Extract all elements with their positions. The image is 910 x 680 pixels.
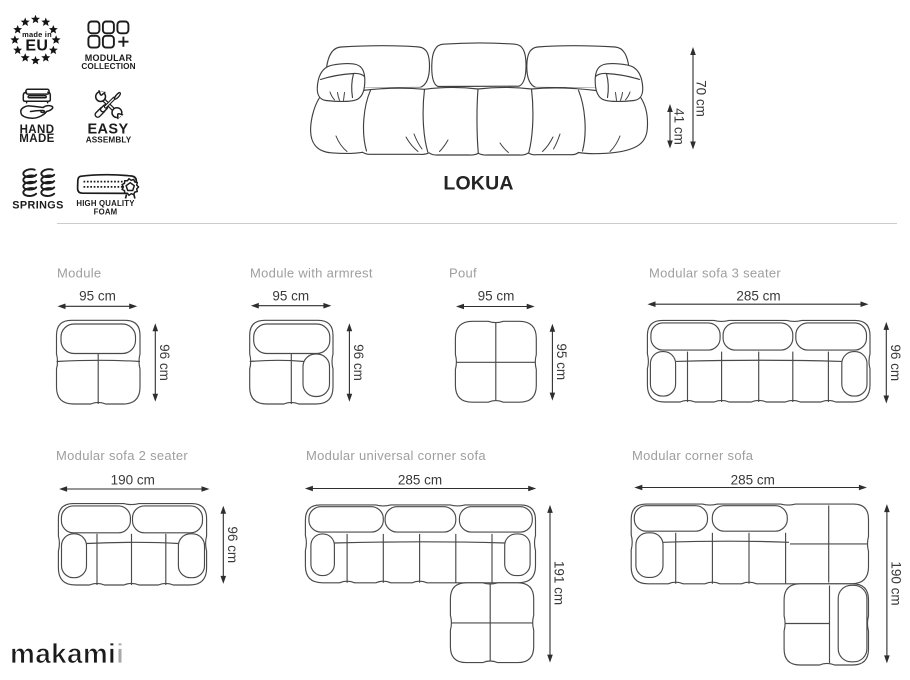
svg-text:190 cm: 190 cm (111, 473, 155, 488)
svg-text:41 cm: 41 cm (672, 108, 687, 145)
svg-text:Module: Module (57, 266, 101, 281)
svg-text:FOAM: FOAM (94, 207, 118, 216)
svg-text:Modular universal corner sofa: Modular universal corner sofa (306, 448, 486, 463)
svg-text:95 cm: 95 cm (272, 289, 309, 304)
svg-text:95 cm: 95 cm (554, 343, 569, 380)
svg-text:Modular sofa 3 seater: Modular sofa 3 seater (649, 266, 781, 281)
svg-text:96 cm: 96 cm (225, 526, 240, 563)
svg-text:COLLECTION: COLLECTION (81, 62, 135, 71)
svg-text:95 cm: 95 cm (79, 289, 116, 304)
svg-text:Pouf: Pouf (449, 266, 477, 281)
svg-text:Module with armrest: Module with armrest (250, 266, 373, 281)
svg-text:191 cm: 191 cm (552, 561, 567, 605)
svg-text:ASSEMBLY: ASSEMBLY (86, 136, 132, 145)
svg-text:MADE: MADE (19, 133, 54, 145)
svg-text:96 cm: 96 cm (157, 344, 172, 381)
svg-text:Modular corner sofa: Modular corner sofa (632, 448, 754, 463)
svg-text:285 cm: 285 cm (731, 473, 775, 488)
svg-text:LOKUA: LOKUA (443, 173, 513, 195)
svg-text:makamii: makamii (10, 638, 124, 669)
svg-text:Modular sofa 2 seater: Modular sofa 2 seater (56, 448, 188, 463)
svg-text:SPRINGS: SPRINGS (12, 199, 63, 211)
svg-text:285 cm: 285 cm (398, 473, 442, 488)
svg-text:96 cm: 96 cm (351, 344, 366, 381)
svg-text:285 cm: 285 cm (736, 289, 780, 304)
svg-text:95 cm: 95 cm (478, 289, 515, 304)
svg-text:96 cm: 96 cm (888, 344, 903, 381)
svg-text:70 cm: 70 cm (694, 80, 709, 117)
svg-text:190 cm: 190 cm (889, 561, 904, 605)
svg-text:EU: EU (25, 38, 48, 55)
